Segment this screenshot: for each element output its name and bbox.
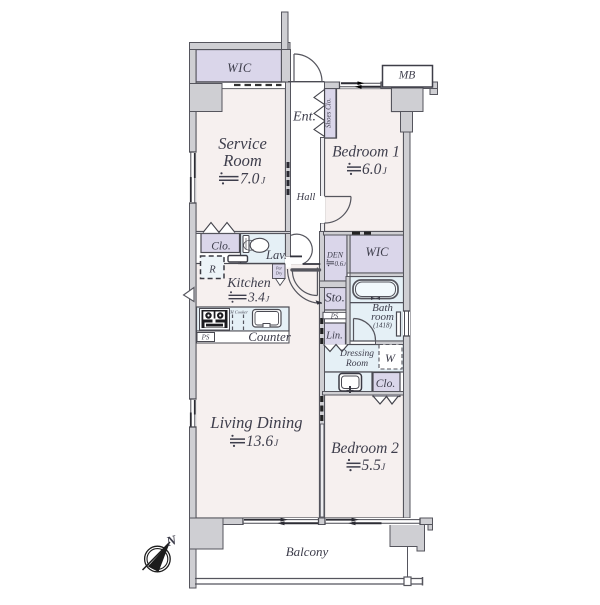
svg-text:Room: Room: [222, 151, 262, 170]
svg-text:0.6: 0.6: [335, 260, 344, 268]
svg-text:Clo.: Clo.: [376, 378, 396, 390]
svg-text:6.0: 6.0: [362, 161, 382, 178]
svg-text:Bedroom 2: Bedroom 2: [331, 440, 399, 457]
svg-text:Dressing: Dressing: [339, 349, 374, 359]
svg-text:DEN: DEN: [326, 251, 344, 260]
svg-text:Lin.: Lin.: [325, 331, 343, 342]
svg-text:PS: PS: [330, 313, 339, 320]
svg-text:Dry: Dry: [275, 271, 282, 276]
svg-text:Bedroom 1: Bedroom 1: [332, 144, 400, 161]
svg-text:5.5: 5.5: [362, 457, 382, 474]
svg-text:Shoes Clo.: Shoes Clo.: [325, 98, 333, 128]
svg-text:Sto.: Sto.: [325, 290, 345, 305]
svg-text:IH Cooker: IH Cooker: [228, 310, 248, 315]
svg-text:WIC: WIC: [227, 61, 252, 75]
svg-text:MB: MB: [398, 70, 416, 82]
svg-text:Balcony: Balcony: [286, 544, 329, 559]
svg-text:Lav.: Lav.: [265, 248, 287, 262]
svg-text:R: R: [208, 265, 216, 276]
svg-text:Counter: Counter: [248, 329, 292, 344]
svg-text:(1418): (1418): [373, 322, 392, 330]
svg-text:7.0: 7.0: [240, 171, 260, 188]
svg-text:Hall: Hall: [296, 192, 316, 203]
svg-text:Ent.: Ent.: [292, 110, 316, 125]
svg-text:PS: PS: [201, 334, 210, 342]
svg-text:Living Dining: Living Dining: [209, 413, 302, 432]
svg-text:WIC: WIC: [366, 245, 390, 259]
svg-text:3.4: 3.4: [247, 290, 265, 305]
svg-text:Room: Room: [345, 359, 368, 369]
svg-text:W: W: [385, 351, 396, 365]
svg-text:13.6: 13.6: [246, 433, 273, 450]
svg-text:Clo.: Clo.: [211, 241, 231, 253]
